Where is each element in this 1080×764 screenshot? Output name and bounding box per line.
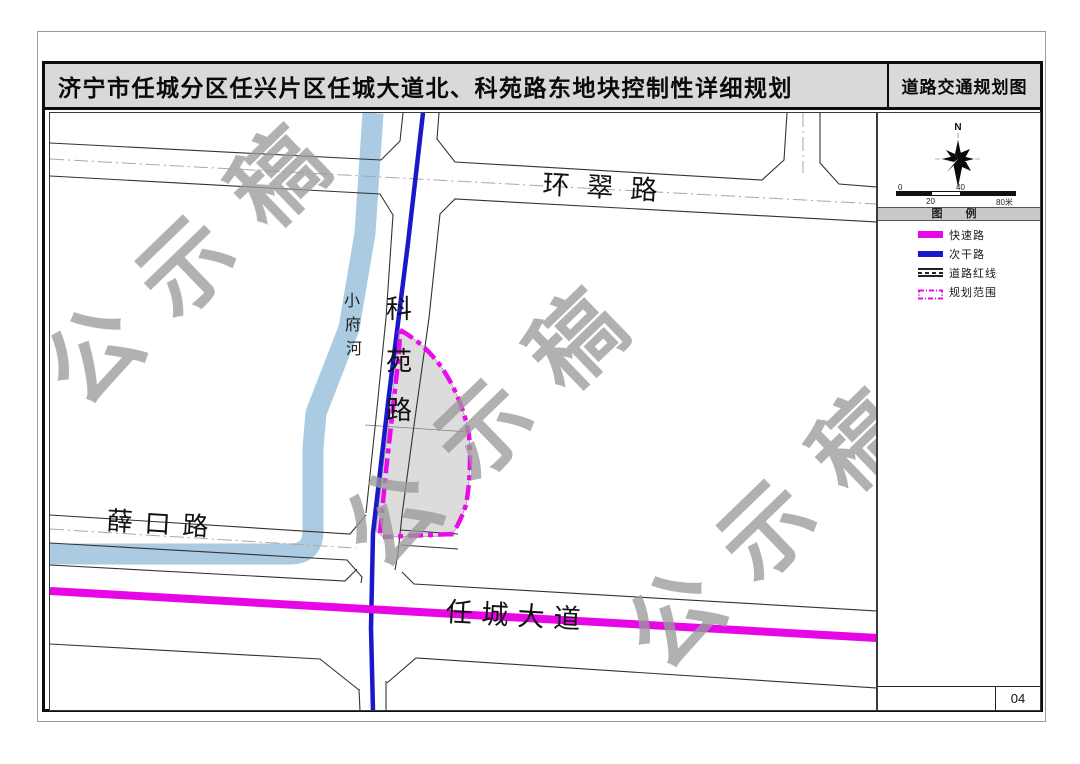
svg-text:路: 路 <box>386 395 412 425</box>
svg-text:小: 小 <box>344 292 360 310</box>
scale-label-20: 20 <box>926 197 935 206</box>
svg-text:府: 府 <box>345 316 361 334</box>
legend-label: 规划范围 <box>949 284 997 300</box>
road-label-keyuan: 科 苑 路 <box>386 294 412 425</box>
legend-item-secondary-road: 次干路 <box>878 244 1040 263</box>
legend-item-expressway: 快速路 <box>878 225 1040 244</box>
compass-rose <box>942 140 974 187</box>
road-redline-swatch <box>918 268 943 277</box>
legend-list: 快速路 次干路 道路红线 规划范围 <box>878 225 1040 301</box>
drawing-frame: 济宁市任城分区任兴片区任城大道北、科苑路东地块控制性详细规划 道路交通规划图 <box>42 61 1043 712</box>
plan-map-svg: 环翠路 薛口路 任城大道 科 苑 路 小 府 河 公示稿 公示稿 公示稿 <box>50 113 877 711</box>
secondary-road-swatch <box>918 251 943 257</box>
road-label-xuekou: 薛口路 <box>106 506 222 543</box>
map-legend-panel: N 0 40 20 80米 <box>877 112 1041 711</box>
expressway-swatch <box>918 231 943 238</box>
svg-text:苑: 苑 <box>386 346 412 376</box>
legend-label: 道路红线 <box>949 265 997 281</box>
legend-item-road-redline: 道路红线 <box>878 263 1040 282</box>
north-label: N <box>954 122 961 133</box>
title-block-footer: 04 <box>878 686 1040 710</box>
scale-track <box>896 191 1016 196</box>
planning-boundary-swatch <box>918 287 943 297</box>
scale-bar: 0 40 20 80米 <box>896 183 1018 205</box>
road-label-huancui: 环翠路 <box>542 169 675 206</box>
map-canvas: 环翠路 薛口路 任城大道 科 苑 路 小 府 河 公示稿 公示稿 公示稿 <box>49 112 877 711</box>
sheet-name: 道路交通规划图 <box>887 64 1040 107</box>
footer-empty-cell <box>878 687 995 710</box>
page-number: 04 <box>995 687 1040 710</box>
title-bar: 济宁市任城分区任兴片区任城大道北、科苑路东地块控制性详细规划 道路交通规划图 <box>45 64 1040 110</box>
svg-text:科: 科 <box>386 294 412 324</box>
page-title: 济宁市任城分区任兴片区任城大道北、科苑路东地块控制性详细规划 <box>45 64 887 107</box>
legend-item-planning-boundary: 规划范围 <box>878 282 1040 301</box>
legend-label: 快速路 <box>949 227 985 243</box>
north-compass: N <box>928 119 988 191</box>
legend-label: 次干路 <box>949 246 985 262</box>
river-label-xiaofuhe: 小 府 河 <box>344 292 362 358</box>
legend-header: 图 例 <box>878 207 1040 221</box>
road-label-rencheng: 任城大道 <box>445 597 590 635</box>
svg-text:河: 河 <box>346 340 362 358</box>
